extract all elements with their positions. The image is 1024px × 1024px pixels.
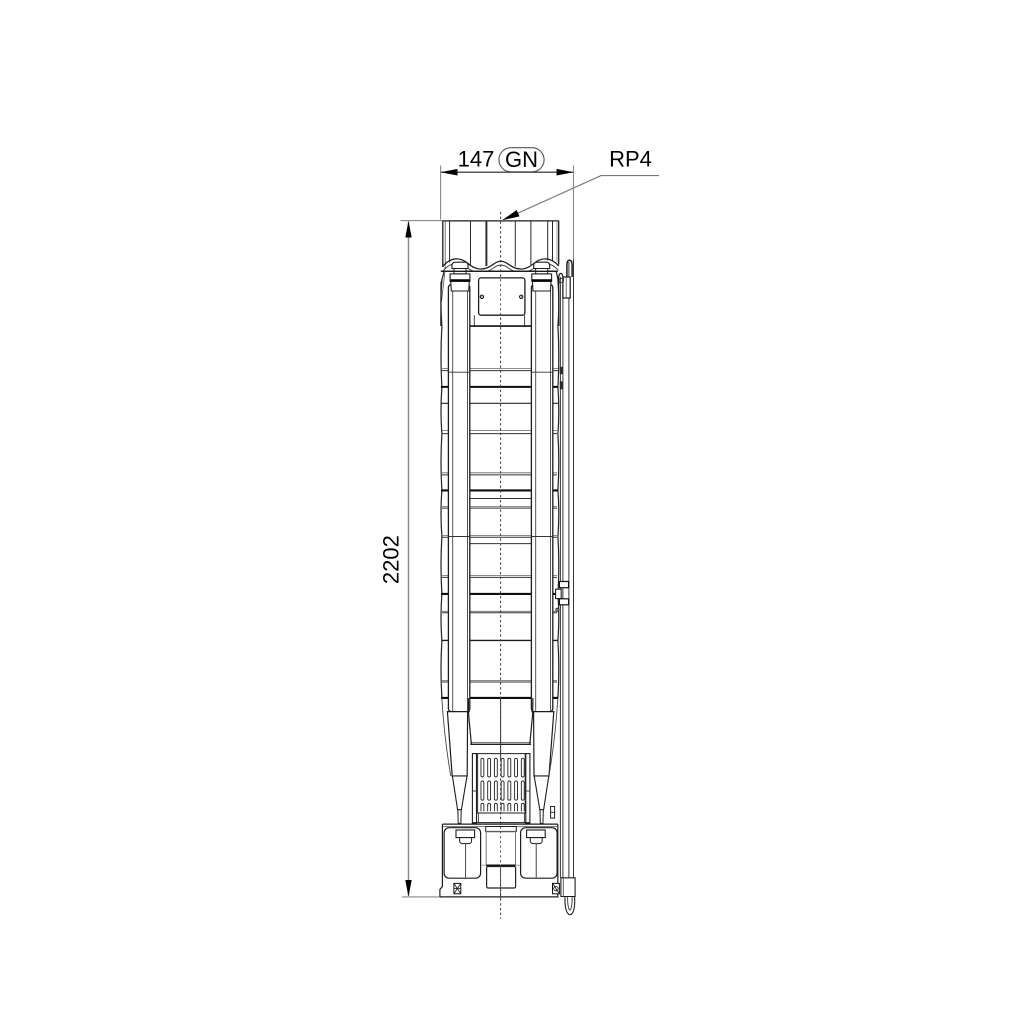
svg-text:147: 147 [458,147,495,172]
svg-text:GN: GN [505,147,538,172]
svg-text:RP4: RP4 [609,147,652,172]
svg-text:2202: 2202 [378,535,403,584]
